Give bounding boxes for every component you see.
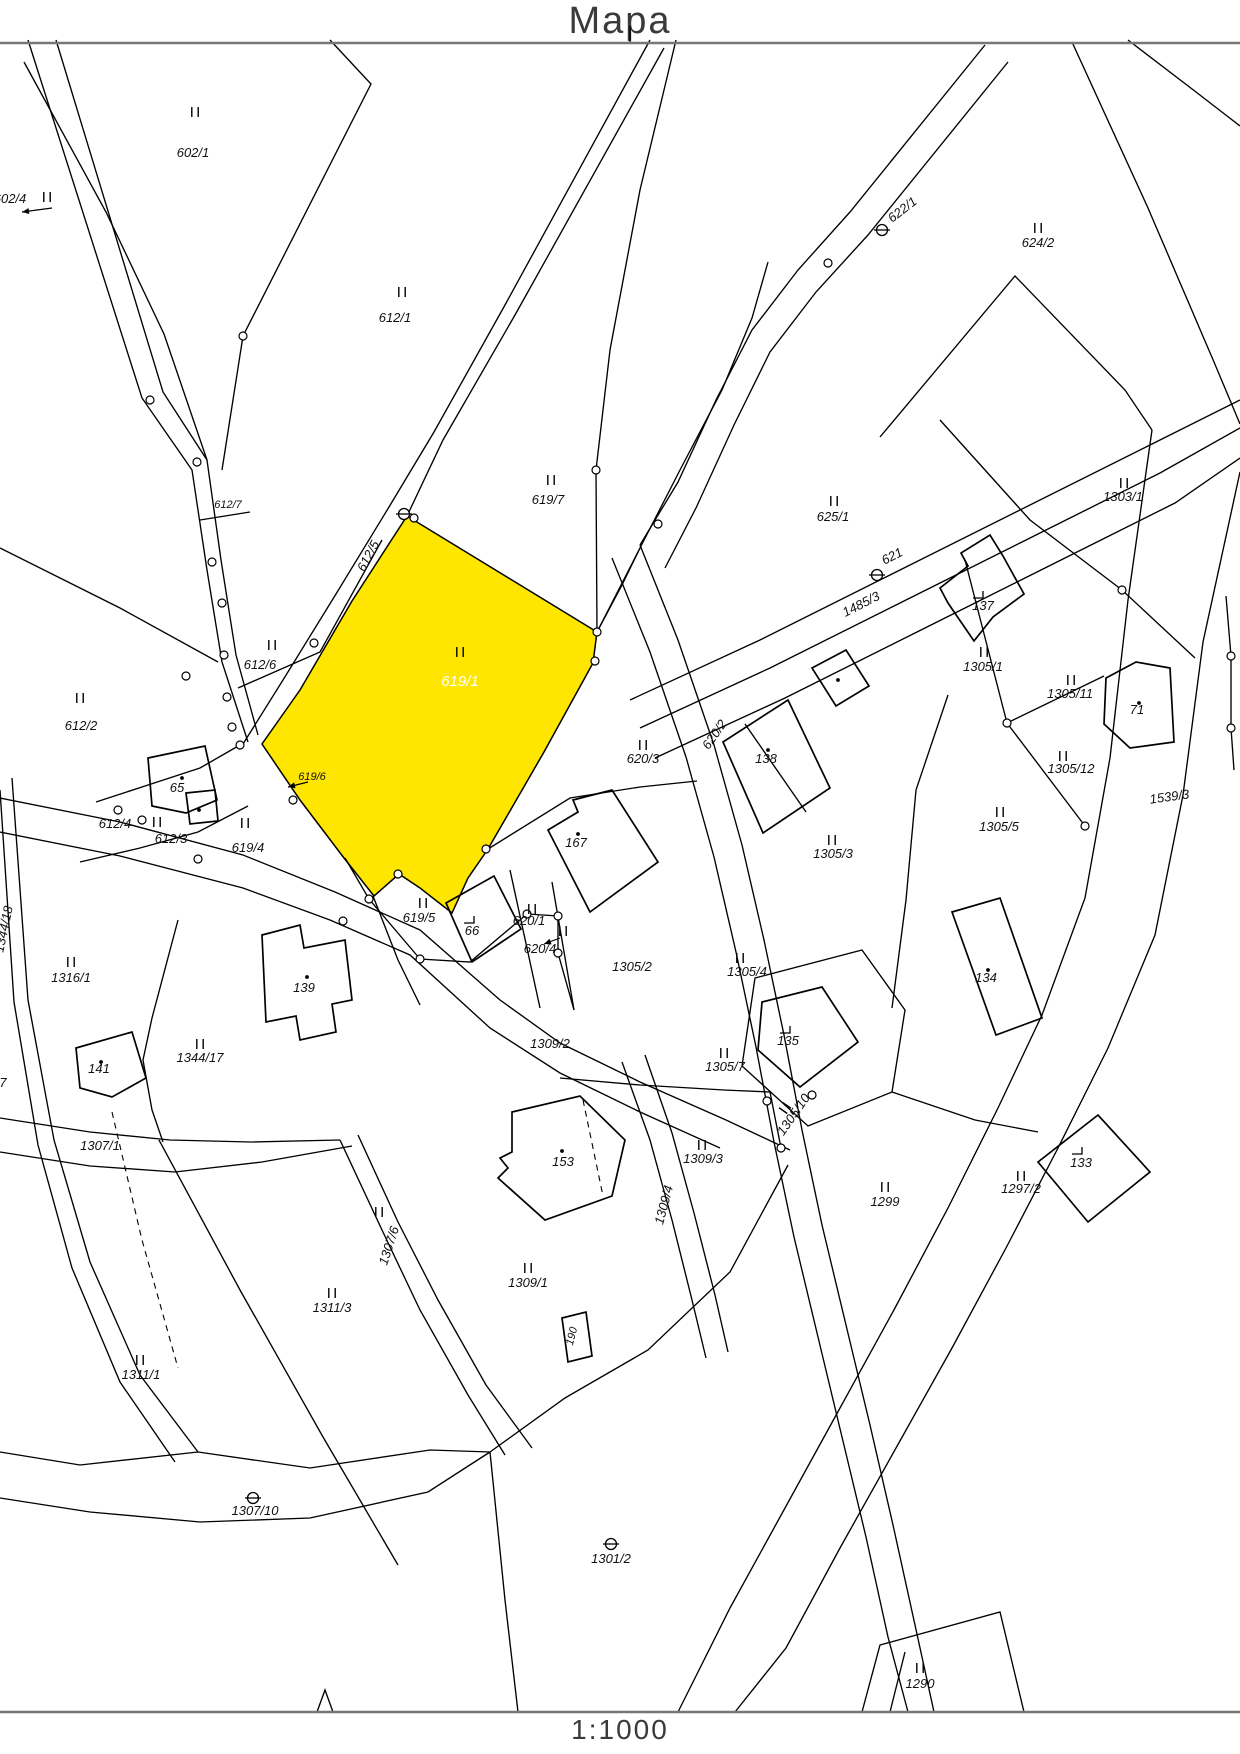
boundary-line: [24, 62, 207, 460]
parcel-label-1344-18: 1344/18: [0, 904, 16, 954]
meadow-mark-icon: [640, 740, 646, 750]
boundary-line: [407, 48, 664, 516]
parcel-label-141: 141: [88, 1061, 110, 1076]
boundary-line: [527, 914, 574, 1010]
map-scale: 1:1000: [0, 1714, 1240, 1746]
parcel-label-620-3: 620/3: [627, 751, 660, 766]
parcel-label-602-1: 602/1: [177, 145, 210, 160]
boundary-line: [745, 724, 806, 812]
parcel-label-190: 190: [564, 1325, 581, 1347]
meadow-mark-icon: [376, 1207, 382, 1217]
boundary-point-icon: [208, 558, 216, 566]
meadow-mark-icon: [77, 693, 83, 703]
parcel-label-624-2: 624/2: [1022, 235, 1055, 250]
boundary-line: [222, 40, 371, 470]
boundary-point-icon: [339, 917, 347, 925]
boundary-line: [0, 1146, 352, 1172]
parcel-label-133: 133: [1070, 1155, 1092, 1170]
meadow-mark-icon: [137, 1355, 143, 1365]
parcel-label-619-5: 619/5: [403, 910, 436, 925]
parcel-label-612-7: 612/7: [214, 499, 242, 511]
boundary-line: [965, 560, 1007, 723]
building-dots: [99, 678, 1141, 1153]
meadow-mark-icon: [1018, 1171, 1024, 1181]
boundary-point-icon: [194, 855, 202, 863]
landuse-marks: [44, 107, 1127, 1673]
boundary-point-icon: [310, 639, 318, 647]
meadow-mark-icon: [525, 1263, 531, 1273]
meadow-mark-icon: [192, 107, 198, 117]
building-use-mark-icon: [464, 916, 474, 923]
boundary-point-icon: [824, 259, 832, 267]
parcel-label-619-7: 619/7: [532, 492, 565, 507]
parcel-label-1539-3: 1539/3: [1149, 786, 1191, 806]
boundary-line: [56, 40, 258, 735]
parcel-label-139: 139: [293, 980, 315, 995]
parcel-label-1305-12: 1305/12: [1048, 761, 1096, 776]
building-outline: [952, 898, 1042, 1035]
parcel-label-1305-1: 1305/1: [963, 659, 1003, 674]
parcel-label-1305-2: 1305/2: [612, 959, 653, 974]
boundary-lines: [0, 26, 1240, 1712]
boundary-line: [28, 40, 248, 742]
boundary-line: [612, 558, 908, 1712]
boundary-point-icon: [114, 806, 122, 814]
boundary-point-icon: [593, 628, 601, 636]
boundary-line: [665, 62, 1008, 568]
meadow-mark-icon: [68, 957, 74, 967]
boundary-line: [597, 262, 768, 632]
parcel-label-621: 621: [879, 544, 905, 567]
boundary-point-icon: [220, 651, 228, 659]
parcel-label-66: 66: [465, 923, 480, 938]
parcel-label-1316-1: 1316/1: [51, 970, 91, 985]
boundary-line: [640, 45, 985, 545]
boundary-point-icon: [138, 816, 146, 824]
parcel-label-135: 135: [777, 1033, 799, 1048]
boundary-line: [510, 870, 540, 1008]
boundary-line: [892, 695, 948, 1008]
dashed-boundary-line: [112, 1112, 178, 1368]
meadow-mark-icon: [1060, 751, 1066, 761]
building-dot-icon: [305, 975, 309, 979]
boundary-point-icon: [763, 1097, 771, 1105]
meadow-mark-icon: [721, 1048, 727, 1058]
building-outlines: [76, 535, 1174, 1362]
boundary-line: [490, 1452, 518, 1712]
boundary-line: [340, 1140, 505, 1455]
building-dot-icon: [197, 808, 201, 812]
building-use-mark-icon: [1072, 1147, 1082, 1154]
boundary-point-icon: [239, 332, 247, 340]
boundary-point-icon: [182, 672, 190, 680]
building-dot-icon: [836, 678, 840, 682]
parcel-label-619-4: 619/4: [232, 840, 265, 855]
parcel-label-1305-11: 1305/11: [1047, 686, 1093, 701]
meadow-mark-icon: [269, 640, 275, 650]
parcel-label-625-1: 625/1: [817, 509, 850, 524]
parcel-label-167: 167: [565, 835, 587, 850]
parcel-label-620-1: 620/1: [513, 913, 546, 928]
building-outline: [812, 650, 869, 706]
boundary-line: [596, 40, 676, 632]
parcel-label-1305-4: 1305/4: [727, 964, 767, 979]
arrow-head-icon: [22, 208, 29, 214]
boundary-line: [0, 548, 218, 662]
cadastral-map: 602/4602/1612/1622/1624/2612/7619/7625/1…: [0, 0, 1240, 1754]
building-dot-icon: [560, 1149, 564, 1153]
boundary-point-icon: [289, 796, 297, 804]
parcel-label-1307-10: 1307/10: [232, 1503, 280, 1518]
meadow-mark-icon: [44, 192, 50, 202]
boundary-point-icon: [218, 599, 226, 607]
boundary-point-icon: [193, 458, 201, 466]
building-use-mark-icon: [780, 1026, 790, 1033]
parcel-label-1303-1: 1303/1: [1103, 489, 1143, 504]
parcel-label-71: 71: [1130, 702, 1144, 717]
boundary-point-icon: [1003, 719, 1011, 727]
meadow-mark-icon: [548, 475, 554, 485]
boundary-point-icon: [236, 741, 244, 749]
highlighted-parcel-619/1[interactable]: [262, 516, 597, 913]
parcel-label-1305-7: 1305/7: [705, 1059, 746, 1074]
parcel-label-612-3: 612/3: [155, 831, 188, 846]
boundary-line: [358, 1135, 532, 1448]
parcel-label-602-4: 602/4: [0, 191, 26, 206]
boundary-point-icon: [410, 514, 418, 522]
parcel-label-1307-6: 1307/6: [375, 1224, 402, 1267]
parcel-label-138: 138: [755, 751, 777, 766]
boundary-line: [12, 778, 198, 1452]
boundary-line: [143, 920, 178, 1142]
parcel-label-1301-2: 1301/2: [591, 1551, 632, 1566]
boundary-point-icon: [777, 1144, 785, 1152]
boundary-line: [1072, 42, 1240, 424]
boundary-point-icon: [554, 912, 562, 920]
meadow-mark-icon: [1035, 223, 1041, 233]
meadow-mark-icon: [242, 818, 248, 828]
meadow-mark-icon: [917, 1663, 923, 1673]
parcel-label-619-6: 619/6: [298, 771, 326, 783]
meadow-mark-icon: [329, 1288, 335, 1298]
boundary-point-icon: [228, 723, 236, 731]
meadow-mark-icon: [981, 647, 987, 657]
dashed-lines: [112, 678, 1106, 1368]
boundary-line: [630, 400, 1240, 700]
boundary-point-icon: [416, 955, 424, 963]
parcel-label-622-1: 622/1: [885, 194, 920, 226]
parcel-label-1299: 1299: [871, 1194, 900, 1209]
building-outline: [548, 790, 658, 912]
parcel-label-137: 137: [972, 598, 994, 613]
meadow-mark-icon: [420, 898, 426, 908]
boundary-point-icon: [365, 895, 373, 903]
boundary-line: [0, 790, 175, 1462]
boundary-line: [640, 428, 1240, 728]
parcel-label-1307-1: 1307/1: [80, 1138, 120, 1153]
boundary-point-icon: [654, 520, 662, 528]
survey-marks: [245, 225, 890, 1550]
parcel-label-1309-1: 1309/1: [508, 1275, 548, 1290]
meadow-mark-icon: [197, 1039, 203, 1049]
boundary-point-icon: [592, 466, 600, 474]
building-outline: [76, 1032, 146, 1097]
boundary-line: [159, 1140, 398, 1565]
boundary-point-icon: [1227, 652, 1235, 660]
parcel-label-7: 7: [0, 1075, 7, 1090]
parcel-label-612-1: 612/1: [379, 310, 412, 325]
boundary-point-icon: [482, 845, 490, 853]
boundary-line: [880, 276, 1152, 437]
boundary-line: [890, 1652, 905, 1712]
meadow-mark-icon: [829, 835, 835, 845]
parcel-label-1344-17: 1344/17: [177, 1050, 225, 1065]
parcel-label-1311-1: 1311/1: [122, 1367, 161, 1382]
meadow-mark-icon: [882, 1182, 888, 1192]
building-outline: [758, 987, 858, 1087]
boundary-line: [940, 420, 1195, 658]
meadow-mark-icon: [1068, 675, 1074, 685]
meadow-mark-icon: [399, 287, 405, 297]
parcel-label-134: 134: [975, 970, 997, 985]
parcel-label-612-6: 612/6: [244, 657, 277, 672]
parcel-label-612-2: 612/2: [65, 718, 98, 733]
boundary-line: [200, 512, 250, 520]
boundary-point-icon: [1227, 724, 1235, 732]
meadow-mark-icon: [1121, 478, 1127, 488]
parcel-label-620-4: 620/4: [524, 941, 557, 956]
boundary-line: [655, 458, 1240, 758]
boundary-line: [1128, 40, 1240, 126]
meadow-mark-icon: [997, 807, 1003, 817]
parcel-label-1290: 1290: [906, 1676, 936, 1691]
boundary-point-icon: [591, 657, 599, 665]
boundary-point-icon: [223, 693, 231, 701]
building-outline: [1038, 1115, 1150, 1222]
parcel-label-1297-2: 1297/2: [1001, 1181, 1042, 1196]
parcel-label-619-1: 619/1: [441, 673, 479, 690]
cadastral-map-document: Mapa 602/4602/1612/1622/1624/2612/7619/7…: [0, 0, 1240, 1754]
boundary-point-icon: [1118, 586, 1126, 594]
parcel-label-153: 153: [552, 1154, 574, 1169]
parcel-label-1305-3: 1305/3: [813, 846, 854, 861]
boundary-point-icon: [146, 396, 154, 404]
boundary-point-icon: [1081, 822, 1089, 830]
boundary-line: [1226, 596, 1234, 770]
parcel-label-1305-10: 1305/10: [774, 1090, 814, 1138]
boundary-line: [892, 1092, 1038, 1132]
parcel-label-1311-3: 1311/3: [313, 1300, 353, 1315]
boundary-line: [678, 430, 1152, 1712]
meadow-mark-icon: [154, 817, 160, 827]
parcel-label-1309-2: 1309/2: [530, 1036, 571, 1051]
meadow-mark-icon: [831, 496, 837, 506]
parcel-label-1309-3: 1309/3: [683, 1151, 724, 1166]
boundary-line: [317, 1690, 333, 1712]
boundary-point-icon: [394, 870, 402, 878]
parcel-label-65: 65: [170, 780, 185, 795]
parcel-label-1305-5: 1305/5: [979, 819, 1020, 834]
parcel-label-612-4: 612/4: [99, 816, 132, 831]
